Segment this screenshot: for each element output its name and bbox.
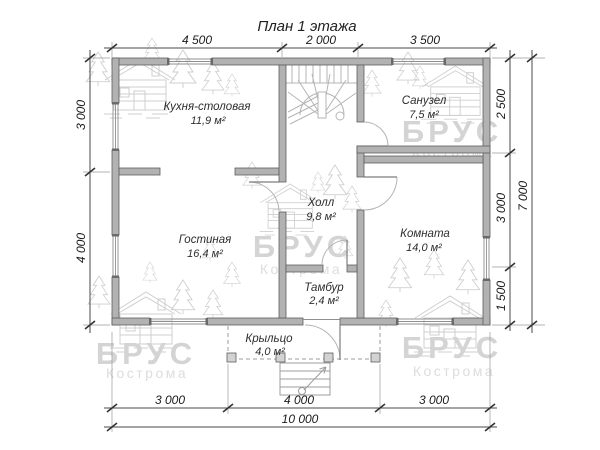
room-area: 4,0 м² <box>255 346 285 358</box>
room-label-vestibule: Тамбур 2,4 м² <box>304 282 344 307</box>
room-area: 2,4 м² <box>308 295 339 307</box>
room-name: Тамбур <box>304 282 344 294</box>
window <box>112 102 119 151</box>
dim-right-2: 3 000 <box>494 193 508 223</box>
dim-top-1: 4 500 <box>182 33 212 47</box>
watermark-city-text: Кострома <box>106 365 188 381</box>
porch-post <box>371 353 380 362</box>
room-label-hall: Холл 9,8 м² <box>306 197 336 223</box>
room-label-porch: Крыльцо 4,0 м² <box>245 333 293 358</box>
room-name: Холл <box>307 197 335 209</box>
porch-post <box>324 353 333 362</box>
dim-left-2: 4 000 <box>74 233 88 263</box>
room-label-kitchen: Кухня-столовая 11,9 м² <box>164 101 251 127</box>
floor-plan-canvas: БРУС Кострома БРУС Кострома БРУС Костром… <box>0 0 600 450</box>
watermark-city-text: Кострома <box>413 363 495 379</box>
dim-right-total: 7 000 <box>516 181 530 211</box>
page-title: План 1 этажа <box>257 18 356 35</box>
floor-plan-page: БРУС Кострома БРУС Кострома БРУС Костром… <box>0 0 600 450</box>
dim-right-1: 2 500 <box>494 89 508 120</box>
watermark-brand-text: БРУС <box>253 229 353 264</box>
room-area: 9,8 м² <box>306 211 336 223</box>
room-label-living: Гостиная 16,4 м² <box>179 234 232 260</box>
porch-post <box>227 353 236 362</box>
dim-top-2: 2 000 <box>305 33 336 47</box>
dim-bottom-total: 10 000 <box>282 412 319 426</box>
door <box>364 177 397 210</box>
room-area: 16,4 м² <box>187 248 223 260</box>
window <box>483 236 490 281</box>
staircase <box>286 65 357 124</box>
room-name: Комната <box>400 228 450 240</box>
room-label-room: Комната 14,0 м² <box>400 228 450 254</box>
entry-steps <box>280 363 330 395</box>
door <box>364 122 388 146</box>
dim-right-3: 1 500 <box>494 281 508 311</box>
dim-bottom-3: 3 000 <box>419 393 449 407</box>
window <box>391 58 446 65</box>
watermark-brand-text: БРУС <box>402 330 502 365</box>
window <box>396 318 454 325</box>
watermark-layer: БРУС Кострома БРУС Кострома БРУС Костром… <box>86 38 502 381</box>
dim-left-1: 3 000 <box>74 100 88 130</box>
window <box>112 234 119 278</box>
room-area: 14,0 м² <box>406 242 442 254</box>
dim-top-3: 3 500 <box>410 33 440 47</box>
window <box>149 318 208 325</box>
room-name: Санузел <box>402 95 447 107</box>
window <box>167 58 213 65</box>
room-name: Крыльцо <box>245 333 293 345</box>
room-area: 11,9 м² <box>191 115 226 127</box>
dim-bottom-1: 3 000 <box>155 393 185 407</box>
dim-bottom-2: 4 000 <box>284 393 314 407</box>
door <box>249 182 279 212</box>
room-name: Гостиная <box>179 234 232 246</box>
brand-watermark: БРУС Кострома <box>96 336 196 381</box>
room-area: 7,5 м² <box>409 109 439 121</box>
room-name: Кухня-столовая <box>164 101 251 113</box>
brand-watermark: БРУС Кострома <box>402 330 502 379</box>
door <box>303 320 340 361</box>
